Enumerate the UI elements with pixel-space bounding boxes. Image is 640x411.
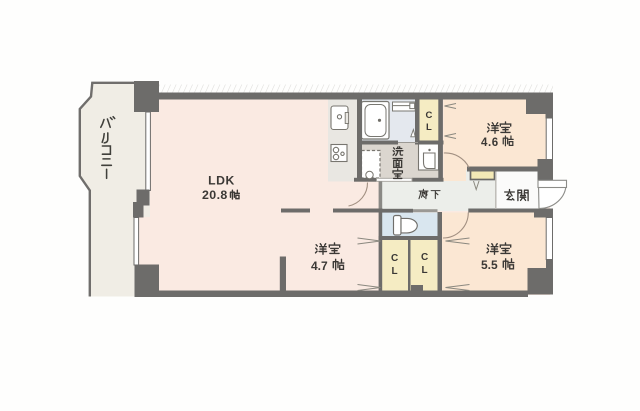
svg-text:5.5: 5.5 xyxy=(481,258,498,272)
svg-text:4.7: 4.7 xyxy=(311,259,328,273)
svg-text:C: C xyxy=(391,253,398,264)
svg-text:L: L xyxy=(426,122,432,133)
svg-text:L: L xyxy=(392,266,398,277)
svg-text:L: L xyxy=(422,265,428,276)
svg-text:20.8: 20.8 xyxy=(202,188,228,202)
svg-text:C: C xyxy=(421,252,428,263)
svg-text:LDK: LDK xyxy=(208,174,235,188)
svg-text:C: C xyxy=(426,110,433,121)
svg-text:4.6: 4.6 xyxy=(481,137,499,149)
